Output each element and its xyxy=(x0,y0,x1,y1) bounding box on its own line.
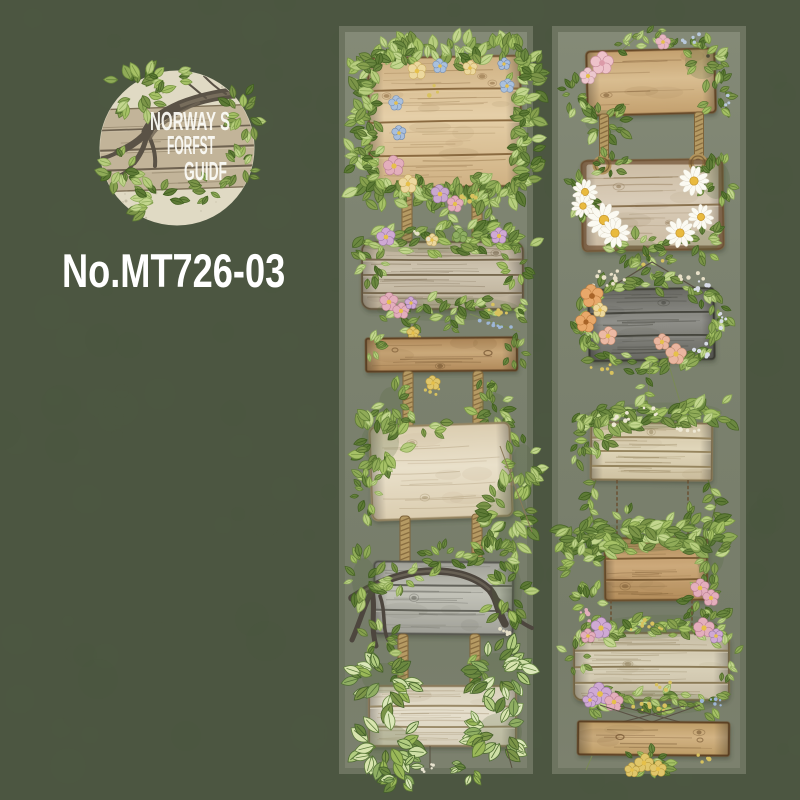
svg-text:GUIDF: GUIDF xyxy=(184,156,227,186)
